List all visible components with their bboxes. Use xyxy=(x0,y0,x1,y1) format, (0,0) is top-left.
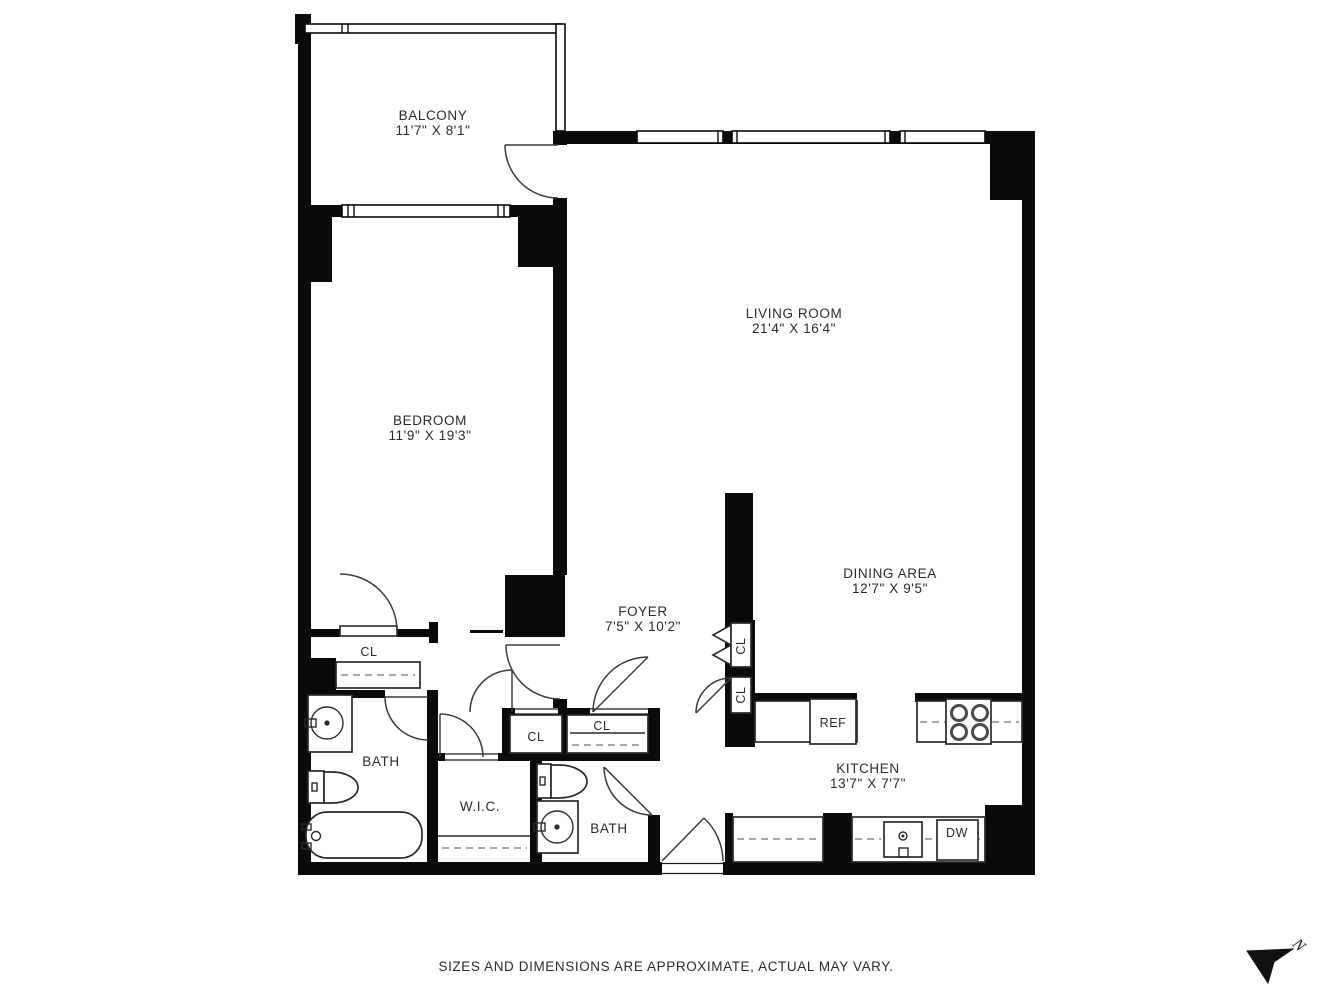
bedroom-closet-door xyxy=(340,574,397,636)
bath1-vanity xyxy=(308,695,352,752)
room-label-living-room: LIVING ROOM xyxy=(746,306,843,321)
room-dims-kitchen: 13'7" X 7'7" xyxy=(830,776,906,791)
foyer-closet-door xyxy=(593,657,648,712)
bath2-fixtures xyxy=(534,764,587,853)
room-dims-dining-area: 12'7" X 9'5" xyxy=(852,581,928,596)
floorplan-drawing: BALCONY 11'7" X 8'1" LIVING ROOM 21'4" X… xyxy=(0,0,1333,1000)
room-label-bath-2: BATH xyxy=(590,821,627,836)
dishwasher-label: DW xyxy=(946,826,968,840)
room-labels: BALCONY 11'7" X 8'1" LIVING ROOM 21'4" X… xyxy=(360,108,968,840)
bath2-door xyxy=(604,767,652,815)
room-label-foyer: FOYER xyxy=(618,604,668,619)
room-label-bedroom: BEDROOM xyxy=(393,413,467,428)
room-dims-bedroom: 11'9" X 19'3" xyxy=(388,428,471,443)
balcony-railing-right xyxy=(556,24,565,131)
room-label-wic: W.I.C. xyxy=(460,799,500,814)
living-room-window xyxy=(900,131,985,143)
north-arrow: N xyxy=(1247,935,1309,983)
room-dims-balcony: 11'7" X 8'1" xyxy=(396,123,471,138)
footer-disclaimer: SIZES AND DIMENSIONS ARE APPROXIMATE, AC… xyxy=(438,959,893,974)
closet-label: CL xyxy=(360,645,377,659)
room-label-dining-area: DINING AREA xyxy=(843,566,937,581)
toilet-icon xyxy=(308,771,324,803)
room-label-bath-1: BATH xyxy=(362,754,399,769)
balcony-railing-top xyxy=(305,24,561,33)
bathtub-icon xyxy=(306,812,422,858)
closet-label: CL xyxy=(527,730,544,744)
closet-label: CL xyxy=(593,719,610,733)
floorplan-page: BALCONY 11'7" X 8'1" LIVING ROOM 21'4" X… xyxy=(0,0,1333,1000)
bath1-door xyxy=(385,697,428,740)
toilet-bowl xyxy=(324,772,358,803)
entry-door xyxy=(662,818,723,861)
closet-label: CL xyxy=(734,637,748,654)
living-room-window xyxy=(637,131,723,143)
hall-door xyxy=(506,645,560,699)
closet-label: CL xyxy=(734,686,748,703)
room-label-kitchen: KITCHEN xyxy=(836,761,899,776)
balcony-door xyxy=(505,145,558,198)
bedroom-window xyxy=(342,205,510,217)
north-label: N xyxy=(1288,935,1309,956)
wic-door xyxy=(440,714,483,757)
room-dims-living-room: 21'4" X 16'4" xyxy=(752,321,836,336)
room-dims-foyer: 7'5" X 10'2" xyxy=(605,619,681,634)
room-label-balcony: BALCONY xyxy=(399,108,468,123)
toilet-bowl xyxy=(551,765,587,798)
hall-closet-door xyxy=(470,670,512,712)
refrigerator-label: REF xyxy=(820,716,847,730)
toilet-icon xyxy=(537,764,551,798)
living-room-window xyxy=(732,131,890,143)
bath1-fixtures xyxy=(302,695,422,858)
